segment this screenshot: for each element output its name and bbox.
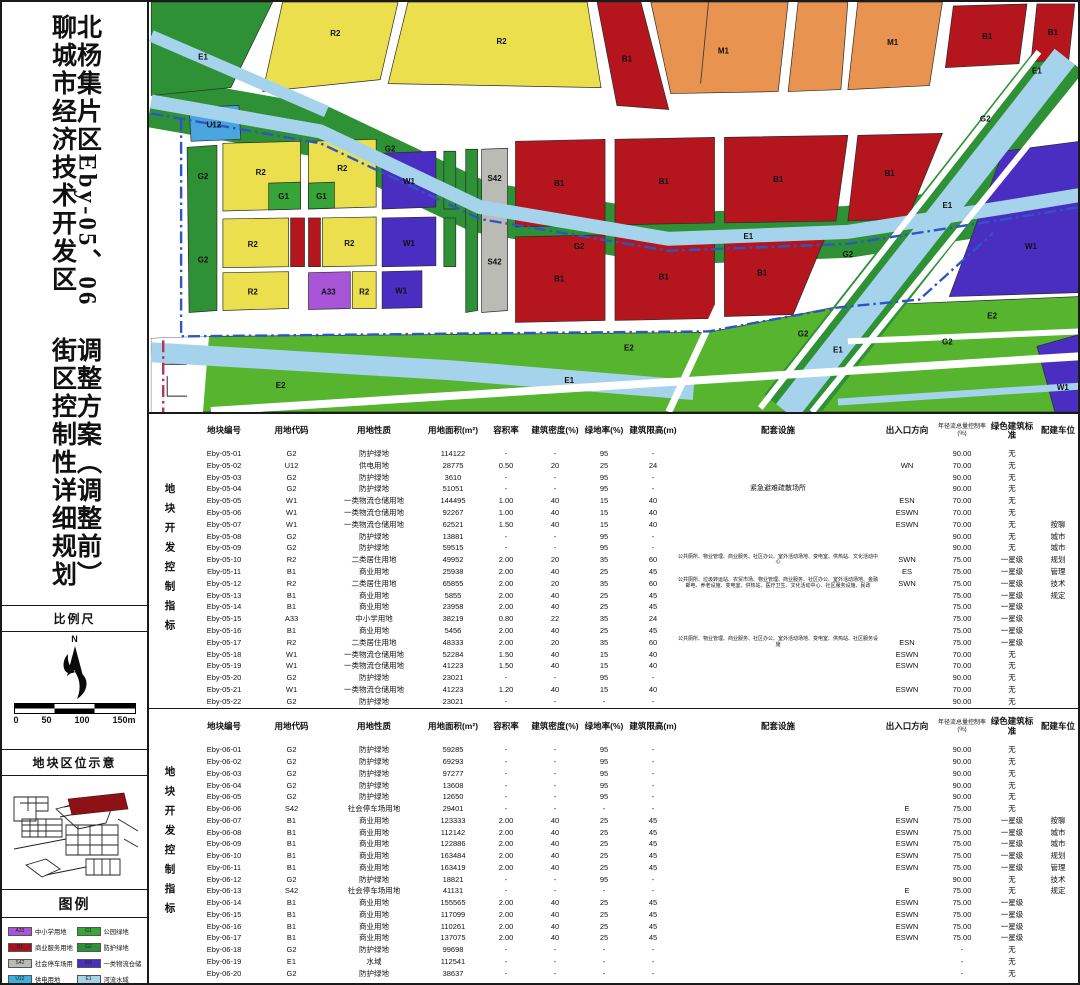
table-cell: 70.00 (936, 521, 988, 529)
table-cell: 155565 (424, 899, 482, 907)
table-cell: 75.00 (936, 639, 988, 647)
table-row: Eby-06-13S42社会停车场用地41131----E75.00无规定 (189, 886, 1080, 898)
table-cell: B1 (259, 923, 324, 931)
table-cell: B1 (259, 852, 324, 860)
table-row: Eby-05-11B1商业用地259382.00402545ES75.00一星级… (189, 566, 1080, 578)
legend-label-text: 商业服务用地 (35, 943, 73, 952)
table-cell: G2 (259, 474, 324, 482)
table-cell: 防护绿地 (324, 544, 424, 552)
table-header-row: 地块编号用地代码用地性质用地面积(m²)容积率建筑密度(%)绿地率(%)建筑限高… (189, 709, 1080, 745)
scale-tick: 0 (14, 715, 19, 725)
map-parcel-label: W1 (1025, 242, 1038, 251)
table-cell: 29401 (424, 805, 482, 813)
column-header: 容积率 (482, 426, 530, 435)
table-cell: 无 (988, 521, 1036, 529)
table-cell: 二类居住用地 (324, 556, 424, 564)
scale-tick: 100 (74, 715, 89, 725)
table-row: Eby-06-07B1商业用地1233332.00402545ESWN75.00… (189, 815, 1080, 827)
table-cell: - (530, 698, 580, 706)
table-cell: ESWN (878, 899, 936, 907)
table-cell: 41223 (424, 686, 482, 694)
table-cell: - (482, 887, 530, 895)
table-cell: Eby-06-17 (189, 934, 259, 942)
table-cell: ESWN (878, 662, 936, 670)
table-cell: ESWN (878, 934, 936, 942)
table-cell: 22 (530, 615, 580, 623)
table-cell: 2.00 (482, 639, 530, 647)
table-cell: - (628, 674, 678, 682)
table-cell: 无 (988, 770, 1036, 778)
table-cell: 69293 (424, 758, 482, 766)
map-parcel-label: M1 (718, 47, 730, 56)
table-cell: 商业用地 (324, 603, 424, 611)
table-cell: 防护绿地 (324, 746, 424, 754)
table-cell: 40 (530, 852, 580, 860)
legend-item: W1一类物流仓储用地 (77, 955, 142, 971)
table-cell: 2.00 (482, 603, 530, 611)
table-cell: 70.00 (936, 462, 988, 470)
table-cell: 75.00 (936, 556, 988, 564)
table-cell: 90.00 (936, 782, 988, 790)
table-cell: 40 (530, 497, 580, 505)
table-cell: 95 (580, 758, 628, 766)
table-cell: 防护绿地 (324, 698, 424, 706)
table-cell: 60 (628, 580, 678, 588)
table-cell: 中小学用地 (324, 615, 424, 623)
map-parcel-label: R2 (330, 29, 341, 38)
table-cell: 管理 (1036, 864, 1080, 872)
table-cell: 40 (530, 911, 580, 919)
map-parcel-label: E1 (1032, 67, 1042, 76)
legend-swatch-S42: S42 (8, 959, 32, 968)
table-cell: - (530, 782, 580, 790)
table-cell: 商业用地 (324, 899, 424, 907)
table-cell: 40 (628, 521, 678, 529)
table-cell: 25 (580, 840, 628, 848)
table-cell: Eby-06-15 (189, 911, 259, 919)
table-cell: 无 (988, 544, 1036, 552)
table-cell: 122886 (424, 840, 482, 848)
table-cell: 95 (580, 674, 628, 682)
table-cell: 40 (628, 686, 678, 694)
table-row: Eby-05-14B1商业用地239582.0040254575.00一星级 (189, 601, 1080, 613)
table-cell: 25 (580, 568, 628, 576)
table-cell: - (628, 533, 678, 541)
table-cell: 一星级 (988, 852, 1036, 860)
table-cell: - (628, 876, 678, 884)
map-parcel-label: G2 (198, 172, 209, 181)
table-cell: 45 (628, 592, 678, 600)
map-parcel-label: E1 (833, 345, 843, 354)
table-cell: - (482, 533, 530, 541)
table-cell: 一星级 (988, 840, 1036, 848)
table-cell: 技术 (1036, 876, 1080, 884)
table-cell: - (482, 758, 530, 766)
table-cell: 40 (530, 829, 580, 837)
map-parcel-label: B1 (773, 175, 784, 184)
table-cell: 15 (580, 497, 628, 505)
location-map (2, 776, 147, 890)
table-cell: - (628, 887, 678, 895)
table-cell: 无 (988, 887, 1036, 895)
table-cell: 40 (530, 568, 580, 576)
table-cell: Eby-06-19 (189, 958, 259, 966)
table-cell: 25 (580, 817, 628, 825)
map-parcel-G2 (444, 218, 456, 267)
table-cell: 45 (628, 934, 678, 942)
table-cell: 112541 (424, 958, 482, 966)
table-cell: 40 (530, 923, 580, 931)
map-parcel-label: R2 (248, 240, 259, 249)
table-cell: 按聊 (1036, 817, 1080, 825)
table-cell: - (530, 746, 580, 754)
table-cell: S42 (259, 887, 324, 895)
map-parcel-label: E2 (987, 311, 997, 320)
table-cell: - (580, 887, 628, 895)
table-cell: 防护绿地 (324, 793, 424, 801)
table-cell: 商业用地 (324, 934, 424, 942)
table-cell: Eby-05-03 (189, 474, 259, 482)
scale-tick: 50 (41, 715, 51, 725)
table-cell: 144495 (424, 497, 482, 505)
table-row: Eby-05-13B1商业用地58552.0040254575.00一星级规定 (189, 590, 1080, 602)
legend-item: B1商业服务用地 (8, 939, 73, 955)
table-cell: 0.80 (482, 615, 530, 623)
table-cell: - (482, 544, 530, 552)
map-parcel-label: W1 (395, 287, 408, 296)
map-parcel-G2 (187, 145, 217, 312)
table-cell: 一星级 (988, 829, 1036, 837)
table-cell: - (530, 876, 580, 884)
column-header: 用地性质 (324, 426, 424, 435)
map-parcel-label: B1 (659, 177, 670, 186)
table-cell: 一星级 (988, 615, 1036, 623)
map-parcel-label: R2 (337, 164, 348, 173)
table-cell: - (628, 485, 678, 493)
table-cell: - (628, 698, 678, 706)
table-row: Eby-05-17R2二类居住用地483332.00203560公共厕所、物业管… (189, 637, 1080, 649)
legend-swatch-G2: G2 (77, 943, 101, 952)
table-cell: 75.00 (936, 568, 988, 576)
column-header: 建筑限高(m) (628, 426, 678, 435)
table-cell: 70.00 (936, 662, 988, 670)
map-parcel-label: U12 (207, 120, 222, 129)
table-cell: G2 (259, 450, 324, 458)
table-cell: Eby-05-09 (189, 544, 259, 552)
table-cell: W1 (259, 521, 324, 529)
table-cell: 15 (580, 509, 628, 517)
table-cell: E1 (259, 958, 324, 966)
table-cell: 防护绿地 (324, 533, 424, 541)
table-cell: 90.00 (936, 544, 988, 552)
table-cell: 20 (530, 462, 580, 470)
table-cell: 40 (530, 592, 580, 600)
table-row: Eby-06-18G2防护绿地99698-----无 (189, 944, 1080, 956)
table-cell: 25 (580, 462, 628, 470)
table-row: Eby-06-03G2防护绿地97277--95-90.00无 (189, 768, 1080, 780)
title-line-2: 街区控制性详细规划调整方案（调整前） (50, 337, 100, 605)
map-parcel-B1 (724, 231, 827, 317)
table-cell: 40 (530, 509, 580, 517)
table-cell: W1 (259, 686, 324, 694)
title-block: 聊城市经济技术开发区北杨集片区Eby-05、06 街区控制性详细规划调整方案（调… (2, 2, 147, 606)
table-cell: 商业用地 (324, 840, 424, 848)
table-cell: 1.00 (482, 509, 530, 517)
table-cell: - (628, 770, 678, 778)
table-cell: W1 (259, 651, 324, 659)
table-cell: Eby-05-10 (189, 556, 259, 564)
map-parcel-label: E1 (564, 376, 574, 385)
table-cell: 一类物流仓储用地 (324, 651, 424, 659)
table-cell: - (482, 746, 530, 754)
table-cell: - (482, 782, 530, 790)
table-cell: 二类居住用地 (324, 580, 424, 588)
table-cell: ESWN (878, 840, 936, 848)
table-cell: 一星级 (988, 603, 1036, 611)
table-cell: ESWN (878, 521, 936, 529)
table-cell: 无 (988, 662, 1036, 670)
table-cell: 70.00 (936, 509, 988, 517)
column-header: 容积率 (482, 722, 530, 731)
table-cell: 23958 (424, 603, 482, 611)
table-cell: 75.00 (936, 911, 988, 919)
table-cell: 15 (580, 521, 628, 529)
table-cell: Eby-06-11 (189, 864, 259, 872)
table-cell: 无 (988, 758, 1036, 766)
column-header: 配套设施 (678, 426, 878, 435)
table-cell: A33 (259, 615, 324, 623)
table-cell: 45 (628, 817, 678, 825)
table-row: Eby-06-11B1商业用地1634192.00402545ESWN75.00… (189, 862, 1080, 874)
table-cell: 59285 (424, 746, 482, 754)
table-cell: 41131 (424, 887, 482, 895)
table-cell: 2.00 (482, 592, 530, 600)
table-cell: 商业用地 (324, 817, 424, 825)
table-cell: 5855 (424, 592, 482, 600)
table-cell: 35 (580, 639, 628, 647)
legend-swatch-E1: E1 (77, 975, 101, 984)
table-cell: G2 (259, 533, 324, 541)
map-parcel-label: W1 (403, 177, 416, 186)
table-cell: 管理 (1036, 568, 1080, 576)
table-cell: - (482, 674, 530, 682)
table-cell: 城市 (1036, 829, 1080, 837)
table-cell: 110261 (424, 923, 482, 931)
table-cell: 一星级 (988, 627, 1036, 635)
table-cell: 25 (580, 864, 628, 872)
table-cell: 防护绿地 (324, 450, 424, 458)
table-cell: Eby-06-18 (189, 946, 259, 954)
column-header: 用地性质 (324, 722, 424, 731)
column-header: 绿色建筑标准 (988, 717, 1036, 736)
table-cell: Eby-06-04 (189, 782, 259, 790)
table-header-row: 地块编号用地代码用地性质用地面积(m²)容积率建筑密度(%)绿地率(%)建筑限高… (189, 414, 1080, 448)
table-cell: 供电用地 (324, 462, 424, 470)
column-header: 地块编号 (189, 722, 259, 731)
table-cell: 社会停车场用地 (324, 805, 424, 813)
table-cell: 二类居住用地 (324, 639, 424, 647)
scale-bar (14, 703, 136, 714)
sidebar: 聊城市经济技术开发区北杨集片区Eby-05、06 街区控制性详细规划调整方案（调… (2, 2, 149, 983)
table-cell: B1 (259, 817, 324, 825)
table-cell: 一类物流仓储用地 (324, 509, 424, 517)
table-cell: 90.00 (936, 674, 988, 682)
table-row: Eby-06-04G2防护绿地13608--95-90.00无 (189, 780, 1080, 792)
table-cell: - (580, 958, 628, 966)
table-cell: - (482, 958, 530, 966)
table-cell: Eby-05-02 (189, 462, 259, 470)
column-header: 绿地率(%) (580, 426, 628, 435)
table-cell: 25 (580, 923, 628, 931)
table-cell: 40 (628, 509, 678, 517)
table-cell: 40 (530, 521, 580, 529)
table-cell: 75.00 (936, 627, 988, 635)
table-cell: 90.00 (936, 746, 988, 754)
table-cell: 商业用地 (324, 627, 424, 635)
map-parcel-label: W1 (1057, 383, 1070, 392)
table-cell: 24 (628, 615, 678, 623)
table-row: Eby-05-03G2防护绿地3610--95-90.00无 (189, 472, 1080, 484)
table-cell: 45 (628, 923, 678, 931)
legend-label-text: 公园绿地 (104, 927, 129, 936)
map-parcel-label: G1 (278, 192, 289, 201)
table-cell: 规定 (1036, 592, 1080, 600)
table-cell: G2 (259, 544, 324, 552)
table-cell: 一星级 (988, 568, 1036, 576)
map-parcel-label: E1 (943, 201, 953, 210)
table-cell: 95 (580, 544, 628, 552)
map-parcel-label: R2 (344, 239, 355, 248)
table-cell: ES (878, 568, 936, 576)
table-cell: Eby-06-07 (189, 817, 259, 825)
table-cell: 0.50 (482, 462, 530, 470)
table-cell: - (628, 958, 678, 966)
table-cell: ESWN (878, 829, 936, 837)
table-cell: 25 (580, 627, 628, 635)
table-cell: 2.00 (482, 840, 530, 848)
table-cell: 25 (580, 899, 628, 907)
table-cell: 规划 (1036, 852, 1080, 860)
map-parcel-R2 (263, 2, 398, 92)
table-cell: - (936, 958, 988, 966)
legend-item: G2防护绿地 (77, 939, 142, 955)
table-cell: - (482, 970, 530, 978)
map-parcel-label: W1 (403, 239, 416, 248)
table-cell: 75.00 (936, 580, 988, 588)
table-row: Eby-06-15B1商业用地1170992.00402545ESWN75.00… (189, 909, 1080, 921)
column-header: 建筑密度(%) (530, 722, 580, 731)
table-cell: 75.00 (936, 852, 988, 860)
table-cell: Eby-05-16 (189, 627, 259, 635)
table-cell: 2.00 (482, 627, 530, 635)
table-block-1: 地块开发控制指标地块编号用地代码用地性质用地面积(m²)容积率建筑密度(%)绿地… (149, 414, 1080, 708)
table-cell: 一星级 (988, 911, 1036, 919)
column-header: 配套设施 (678, 722, 878, 731)
table-cell: 38219 (424, 615, 482, 623)
table-cell: 无 (988, 450, 1036, 458)
table-cell: - (482, 450, 530, 458)
table-cell: - (530, 544, 580, 552)
legend-label-text: 防护绿地 (104, 943, 129, 952)
table-cell: Eby-06-12 (189, 876, 259, 884)
table-cell: Eby-06-08 (189, 829, 259, 837)
table-cell: 水域 (324, 958, 424, 966)
table-cell: B1 (259, 568, 324, 576)
map-parcel-label: B1 (554, 179, 565, 188)
table-cell: 90.00 (936, 793, 988, 801)
table-block-2: 地块开发控制指标地块编号用地代码用地性质用地面积(m²)容积率建筑密度(%)绿地… (149, 708, 1080, 980)
table-row: Eby-06-09B1商业用地1228862.00402545ESWN75.00… (189, 839, 1080, 851)
table-cell: - (530, 674, 580, 682)
table-cell: 90.00 (936, 698, 988, 706)
table-cell: 2.00 (482, 829, 530, 837)
table-cell: - (530, 946, 580, 954)
legend-label-text: 中小学用地 (35, 927, 66, 936)
table-cell: 95 (580, 793, 628, 801)
table-cell: 75.00 (936, 840, 988, 848)
table-cell: 92267 (424, 509, 482, 517)
table-cell: Eby-05-15 (189, 615, 259, 623)
map-parcel-label: B1 (554, 275, 565, 284)
table-cell: G2 (259, 770, 324, 778)
table-cell: 35 (580, 580, 628, 588)
table-cell: 75.00 (936, 603, 988, 611)
table-cell: 2.00 (482, 923, 530, 931)
table-cell: 13608 (424, 782, 482, 790)
table-cell: 公共厕所、物业管理、商业服务、社区办公、室外活动场地、变电室、供热站、文化活动中… (678, 555, 878, 566)
table-cell: - (530, 474, 580, 482)
column-header: 配建车位 (1036, 722, 1080, 731)
table-cell: WN (878, 462, 936, 470)
compass-scale-section: N 0 50 100 150m (2, 632, 147, 750)
table-cell: Eby-05-12 (189, 580, 259, 588)
table-cell: 41223 (424, 662, 482, 670)
table-cell: 114122 (424, 450, 482, 458)
table-cell: 70.00 (936, 497, 988, 505)
table-cell: - (530, 970, 580, 978)
compass-icon (55, 644, 95, 700)
table-row: Eby-05-09G2防护绿地59515--95-90.00无城市 (189, 542, 1080, 554)
table-row: Eby-05-05W1一类物流仓储用地1444951.00401540ESN70… (189, 495, 1080, 507)
map-parcel-M1 (788, 2, 848, 92)
table-cell: 一星级 (988, 639, 1036, 647)
table-cell: B1 (259, 603, 324, 611)
table-cell: 一星级 (988, 556, 1036, 564)
table-cell: 无 (988, 474, 1036, 482)
table-cell: - (482, 474, 530, 482)
map-parcel-label: G2 (980, 114, 991, 123)
table-cell: 95 (580, 533, 628, 541)
title-line-1: 聊城市经济技术开发区北杨集片区Eby-05、06 (50, 14, 100, 319)
table-cell: 防护绿地 (324, 970, 424, 978)
table-cell: 40 (530, 934, 580, 942)
table-cell: 一类物流仓储用地 (324, 521, 424, 529)
table-cell: 38637 (424, 970, 482, 978)
table-cell: - (530, 770, 580, 778)
table-row: Eby-06-06S42社会停车场用地29401----E75.00无 (189, 803, 1080, 815)
table-cell: 60 (628, 639, 678, 647)
table-cell: G2 (259, 876, 324, 884)
table-cell: Eby-05-04 (189, 485, 259, 493)
table-cell: 95 (580, 782, 628, 790)
table-cell: R2 (259, 580, 324, 588)
column-header: 配建车位 (1036, 426, 1080, 435)
table-cell: 70.00 (936, 686, 988, 694)
table-cell: - (530, 805, 580, 813)
table-cell: 无 (988, 651, 1036, 659)
table-cell: Eby-06-14 (189, 899, 259, 907)
table-row: Eby-06-20G2防护绿地38637-----无 (189, 968, 1080, 980)
